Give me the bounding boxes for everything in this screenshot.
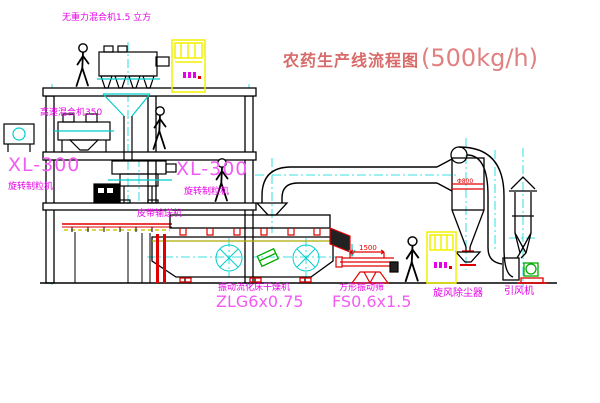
label-sieve-model: FS0.6x1.5 [332,294,411,311]
label-granulator-right-model: XL-300 [176,160,248,180]
control-cabinet-2 [427,232,456,283]
granulator-machine [94,161,176,203]
belt-conveyor [62,224,172,283]
induced-draft-fan [503,258,547,283]
label-belt-conveyor: 皮带输送机 [137,210,182,219]
left-platform-equipment [4,124,34,152]
cyclone-size-text: Φ800 [457,178,473,185]
label-cyclone: 旋风除尘器 [433,289,483,300]
sieve-dimension-text: 1500 [359,244,377,252]
vibrating-sieve [330,228,398,283]
air-duct-main [262,159,452,203]
process-flow-diagram: 1500 Φ800 农药生产线流程图 (500kg/h) 无重力混合机1.5 立… [0,0,600,403]
control-cabinet-1 [172,40,205,92]
label-high-speed-mixer: 高速混合机350 [40,109,102,118]
label-fan: 引风机 [504,287,534,298]
diagram-title: 农药生产线流程图 (500kg/h) [283,44,538,72]
worker-4 [406,237,419,281]
label-granulator-left-model: XL-300 [8,156,80,176]
label-granulator-left-name: 旋转制粒机 [8,183,53,192]
title-text: 农药生产线流程图 [283,47,419,71]
title-capacity: (500kg/h) [421,44,538,72]
gravity-free-mixer [97,46,169,88]
label-dryer-model: ZLG6x0.75 [216,294,304,311]
label-granulator-right-name: 旋转制粒机 [184,188,229,197]
worker-1 [77,44,89,86]
high-speed-mixer [54,114,114,152]
label-gravity-free-mixer: 无重力混合机1.5 立方 [62,14,151,23]
